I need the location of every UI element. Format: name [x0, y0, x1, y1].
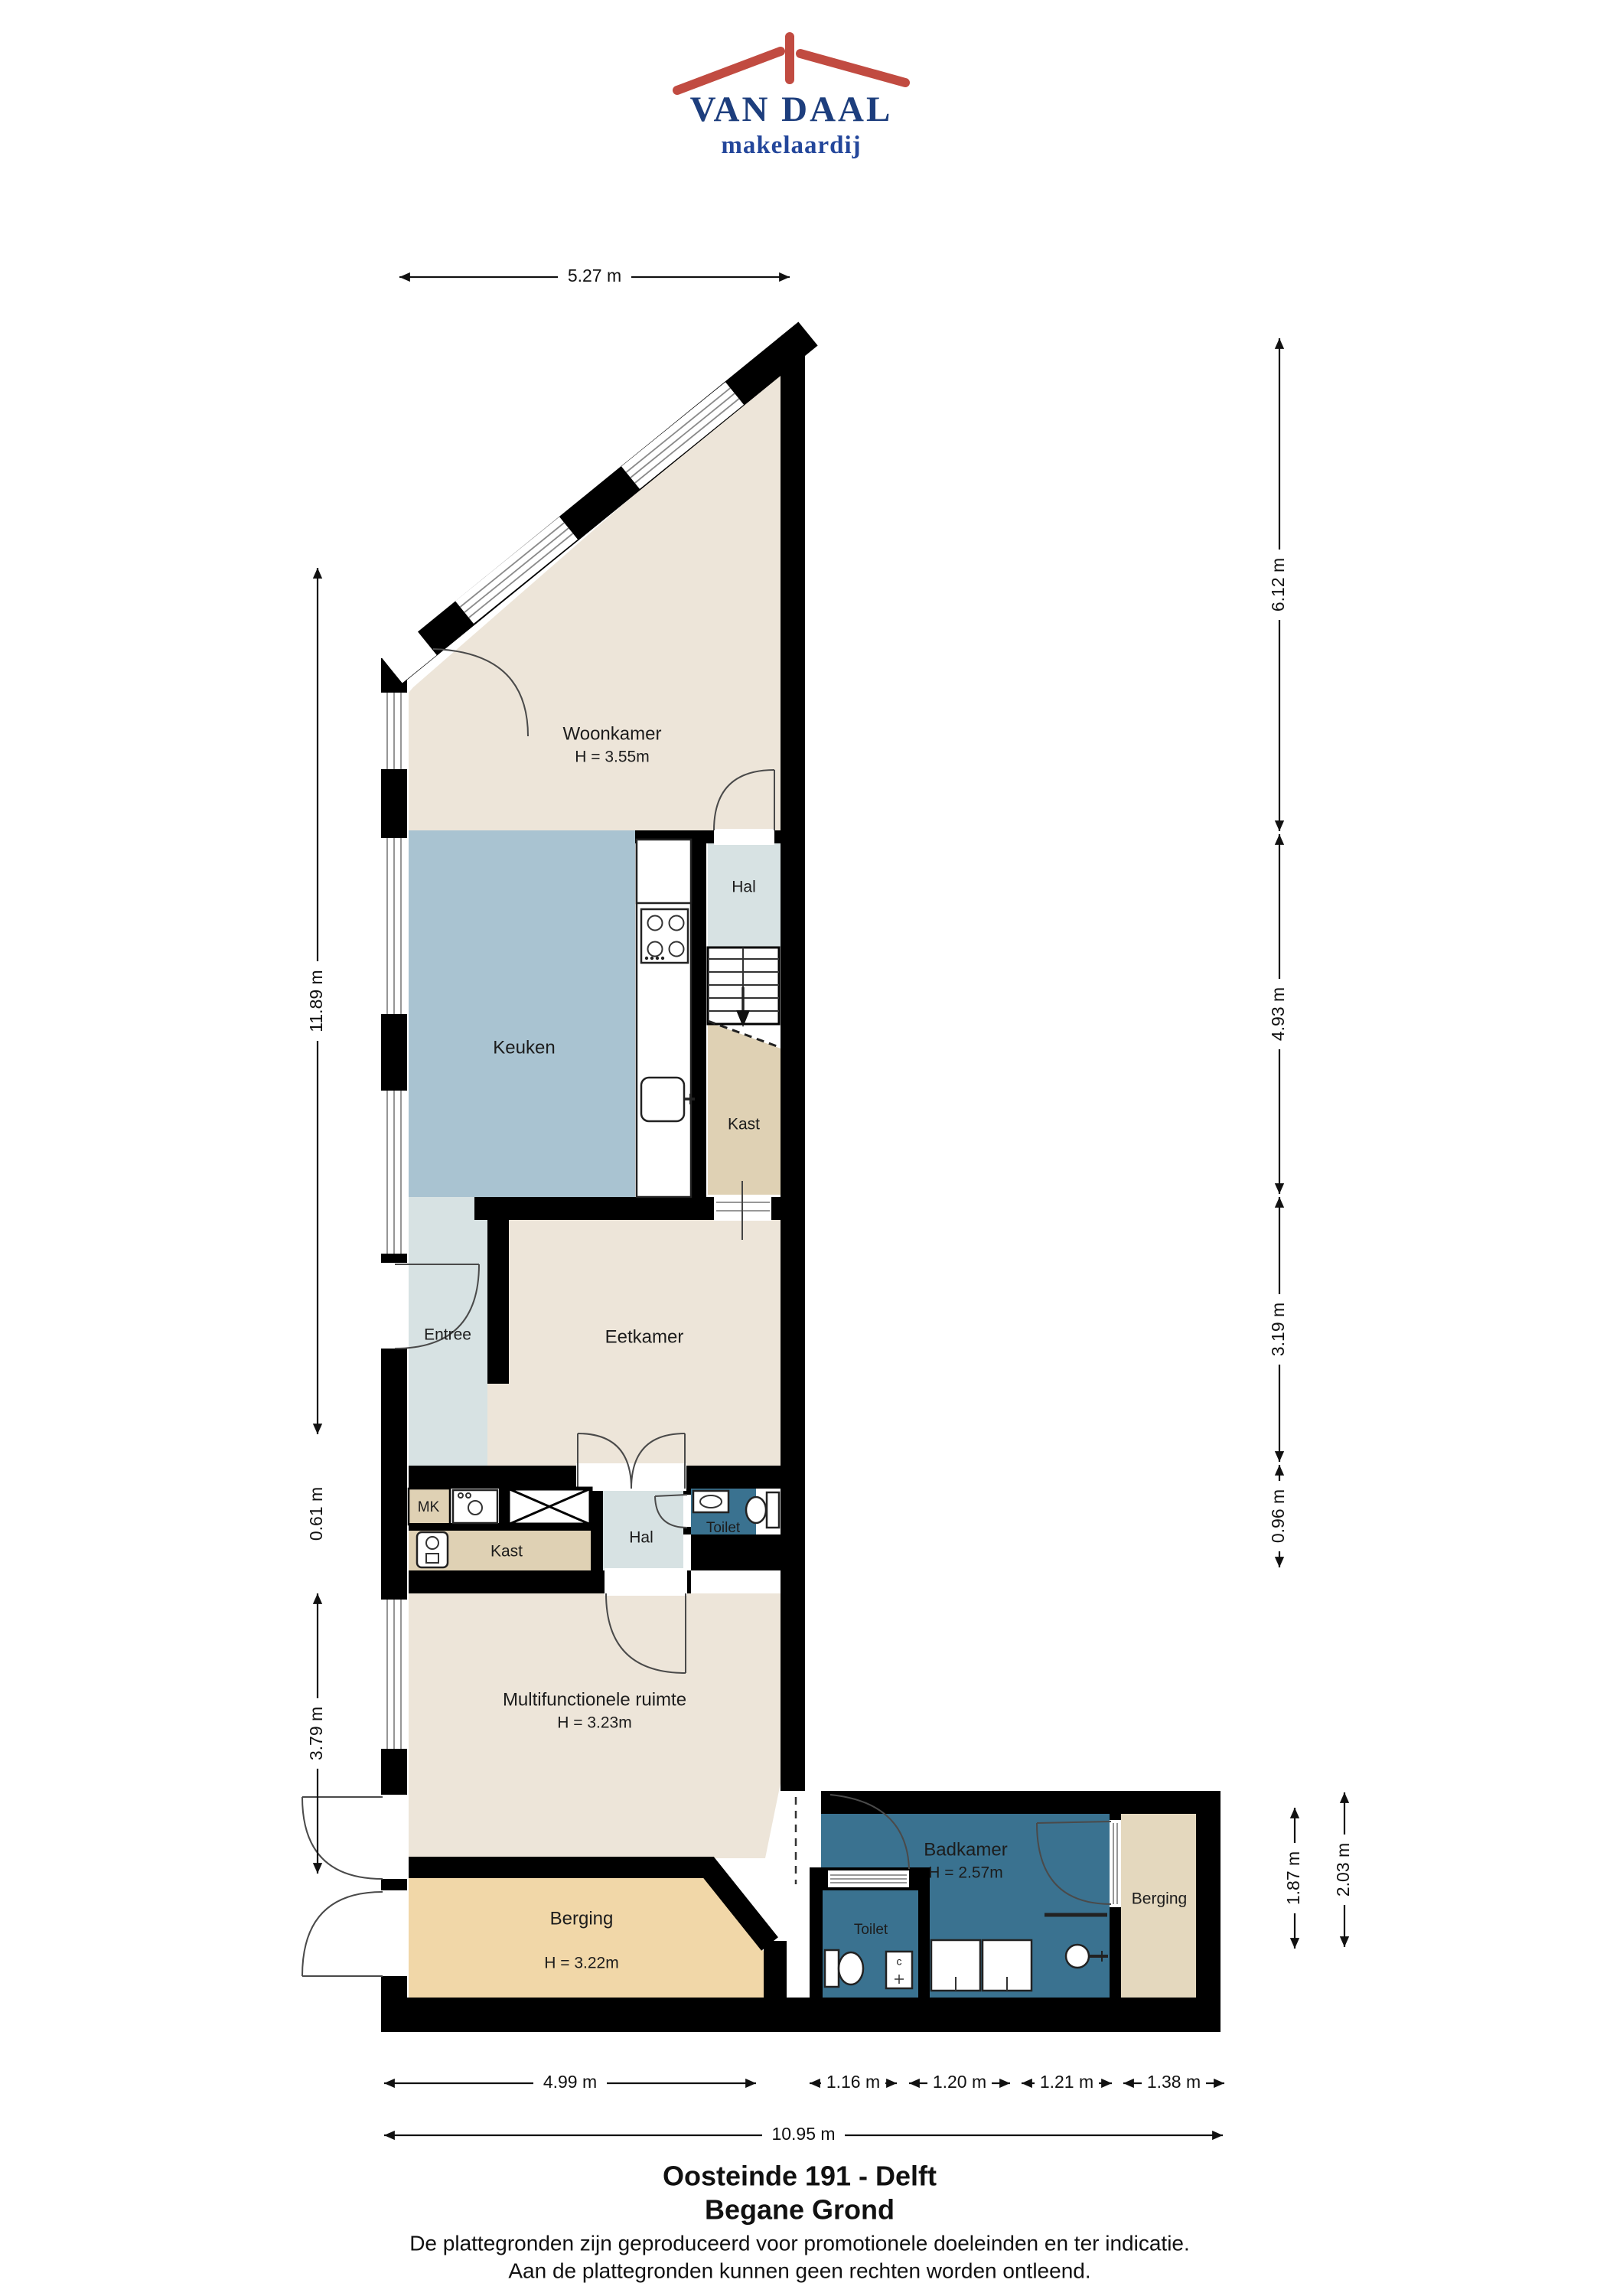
boiler-icon [417, 1532, 448, 1567]
label-hal-boven: Hal [732, 879, 756, 896]
svg-text:0.96 m: 0.96 m [1268, 1489, 1288, 1543]
room-kast-boven [708, 1022, 781, 1195]
dim-right-mid: 4.93 m [1268, 834, 1290, 1194]
label-keuken: Keuken [493, 1037, 555, 1058]
label-berging-links-height: H = 3.22m [544, 1955, 618, 1972]
stove-icon [641, 909, 688, 963]
svg-text:3.19 m: 3.19 m [1268, 1303, 1288, 1356]
label-eetkamer: Eetkamer [605, 1326, 684, 1347]
dim-left-main: 11.89 m [306, 568, 328, 1434]
disclaimer-line2: Aan de plattegronden kunnen geen rechten… [508, 2258, 1090, 2282]
dim-wing-outer: 2.03 m [1333, 1792, 1355, 1947]
hal-boven-door-opening [714, 829, 774, 845]
label-multifunctionele: Multifunctionele ruimte [503, 1689, 686, 1710]
label-badkamer: Badkamer [924, 1839, 1007, 1860]
svg-text:10.95 m: 10.95 m [771, 2124, 835, 2144]
multi-door-arc [302, 1797, 383, 1879]
dim-right-lower: 3.19 m [1268, 1197, 1290, 1462]
cabinet-label: c [897, 1955, 902, 1968]
window-left-1 [381, 693, 407, 769]
dim-top-width: 5.27 m [399, 266, 790, 288]
toilet-boven-door-opening [683, 1495, 691, 1527]
toilet-onder-cabinet: c [886, 1952, 912, 1988]
page-title: Oosteinde 191 - Delft [663, 2161, 937, 2192]
dim-bottom-left: 4.99 m [384, 2072, 756, 2094]
label-berging-links: Berging [550, 1908, 614, 1929]
entree-door-opening [381, 1263, 407, 1349]
svg-text:2.03 m: 2.03 m [1333, 1843, 1353, 1896]
window-left-3 [381, 1091, 407, 1254]
floorplan-canvas: VAN DAAL makelaardij [0, 0, 1623, 2296]
svg-text:3.79 m: 3.79 m [306, 1707, 326, 1760]
room-berging-links [409, 1878, 765, 1998]
page-subtitle: Begane Grond [705, 2194, 895, 2226]
svg-text:1.38 m: 1.38 m [1147, 2072, 1201, 2092]
dim-bottom-seg4: 1.38 m [1123, 2072, 1224, 2094]
svg-text:1.16 m: 1.16 m [826, 2072, 880, 2092]
svg-text:1.21 m: 1.21 m [1040, 2072, 1093, 2092]
floorplan-page: VAN DAAL makelaardij [0, 0, 1623, 2296]
berging-door-opening [381, 1890, 407, 1976]
window-left-4 [381, 1600, 407, 1749]
label-mk: MK [418, 1499, 440, 1515]
label-woonkamer-height: H = 3.55m [575, 748, 649, 766]
label-badkamer-height: H = 2.57m [928, 1864, 1002, 1882]
caption: Oosteinde 191 - Delft Begane Grond De pl… [409, 2161, 1190, 2283]
label-woonkamer: Woonkamer [563, 723, 662, 744]
dim-bottom-total: 10.95 m [384, 2124, 1223, 2146]
roof-icon [677, 37, 905, 90]
label-hal-onder: Hal [629, 1529, 653, 1547]
shaft-box [508, 1489, 591, 1525]
dim-bottom-seg3: 1.21 m [1022, 2072, 1112, 2094]
badkamer-berging-door-opening [1110, 1820, 1121, 1907]
multi-door-opening [381, 1795, 407, 1879]
multi-hal-door-opening [605, 1568, 687, 1596]
dim-wing-inner: 1.87 m [1283, 1808, 1305, 1949]
toilet-onder-toilet-icon [825, 1950, 863, 1987]
label-multifunctionele-height: H = 3.23m [557, 1714, 631, 1732]
window-left-2 [381, 838, 407, 1014]
svg-text:1.20 m: 1.20 m [933, 2072, 986, 2092]
berging-door-arc [302, 1892, 383, 1976]
svg-text:5.27 m: 5.27 m [568, 266, 621, 285]
dim-left-small: 0.61 m [306, 1479, 328, 1549]
label-berging-rechts: Berging [1132, 1890, 1187, 1908]
label-toilet-onder: Toilet [854, 1922, 888, 1938]
label-toilet-boven: Toilet [706, 1520, 741, 1536]
kitchen-top-cabinet [637, 840, 691, 903]
svg-text:6.12 m: 6.12 m [1268, 558, 1288, 612]
logo-tagline: makelaardij [721, 132, 861, 159]
label-entree: Entree [424, 1326, 471, 1344]
svg-text:0.61 m: 0.61 m [306, 1487, 326, 1541]
dim-bottom-seg1: 1.16 m [810, 2072, 897, 2094]
toilet-boven-sink-icon [693, 1491, 728, 1512]
svg-text:4.93 m: 4.93 m [1268, 987, 1288, 1041]
label-kast-boven: Kast [728, 1116, 760, 1133]
dim-right-small: 0.96 m [1268, 1465, 1290, 1567]
dim-right-top: 6.12 m [1268, 338, 1290, 831]
label-kast-onder: Kast [490, 1543, 523, 1561]
room-keuken [409, 830, 635, 1197]
logo: VAN DAAL makelaardij [677, 37, 905, 159]
disclaimer-line1: De plattegronden zijn geproduceerd voor … [409, 2231, 1190, 2255]
dim-left-lower: 3.79 m [306, 1593, 328, 1874]
washer-icon [453, 1490, 497, 1523]
svg-text:1.87 m: 1.87 m [1283, 1851, 1303, 1905]
svg-text:11.89 m: 11.89 m [306, 970, 326, 1032]
logo-name: VAN DAAL [690, 90, 893, 129]
dim-bottom-seg2: 1.20 m [909, 2072, 1010, 2094]
svg-text:4.99 m: 4.99 m [543, 2072, 597, 2092]
